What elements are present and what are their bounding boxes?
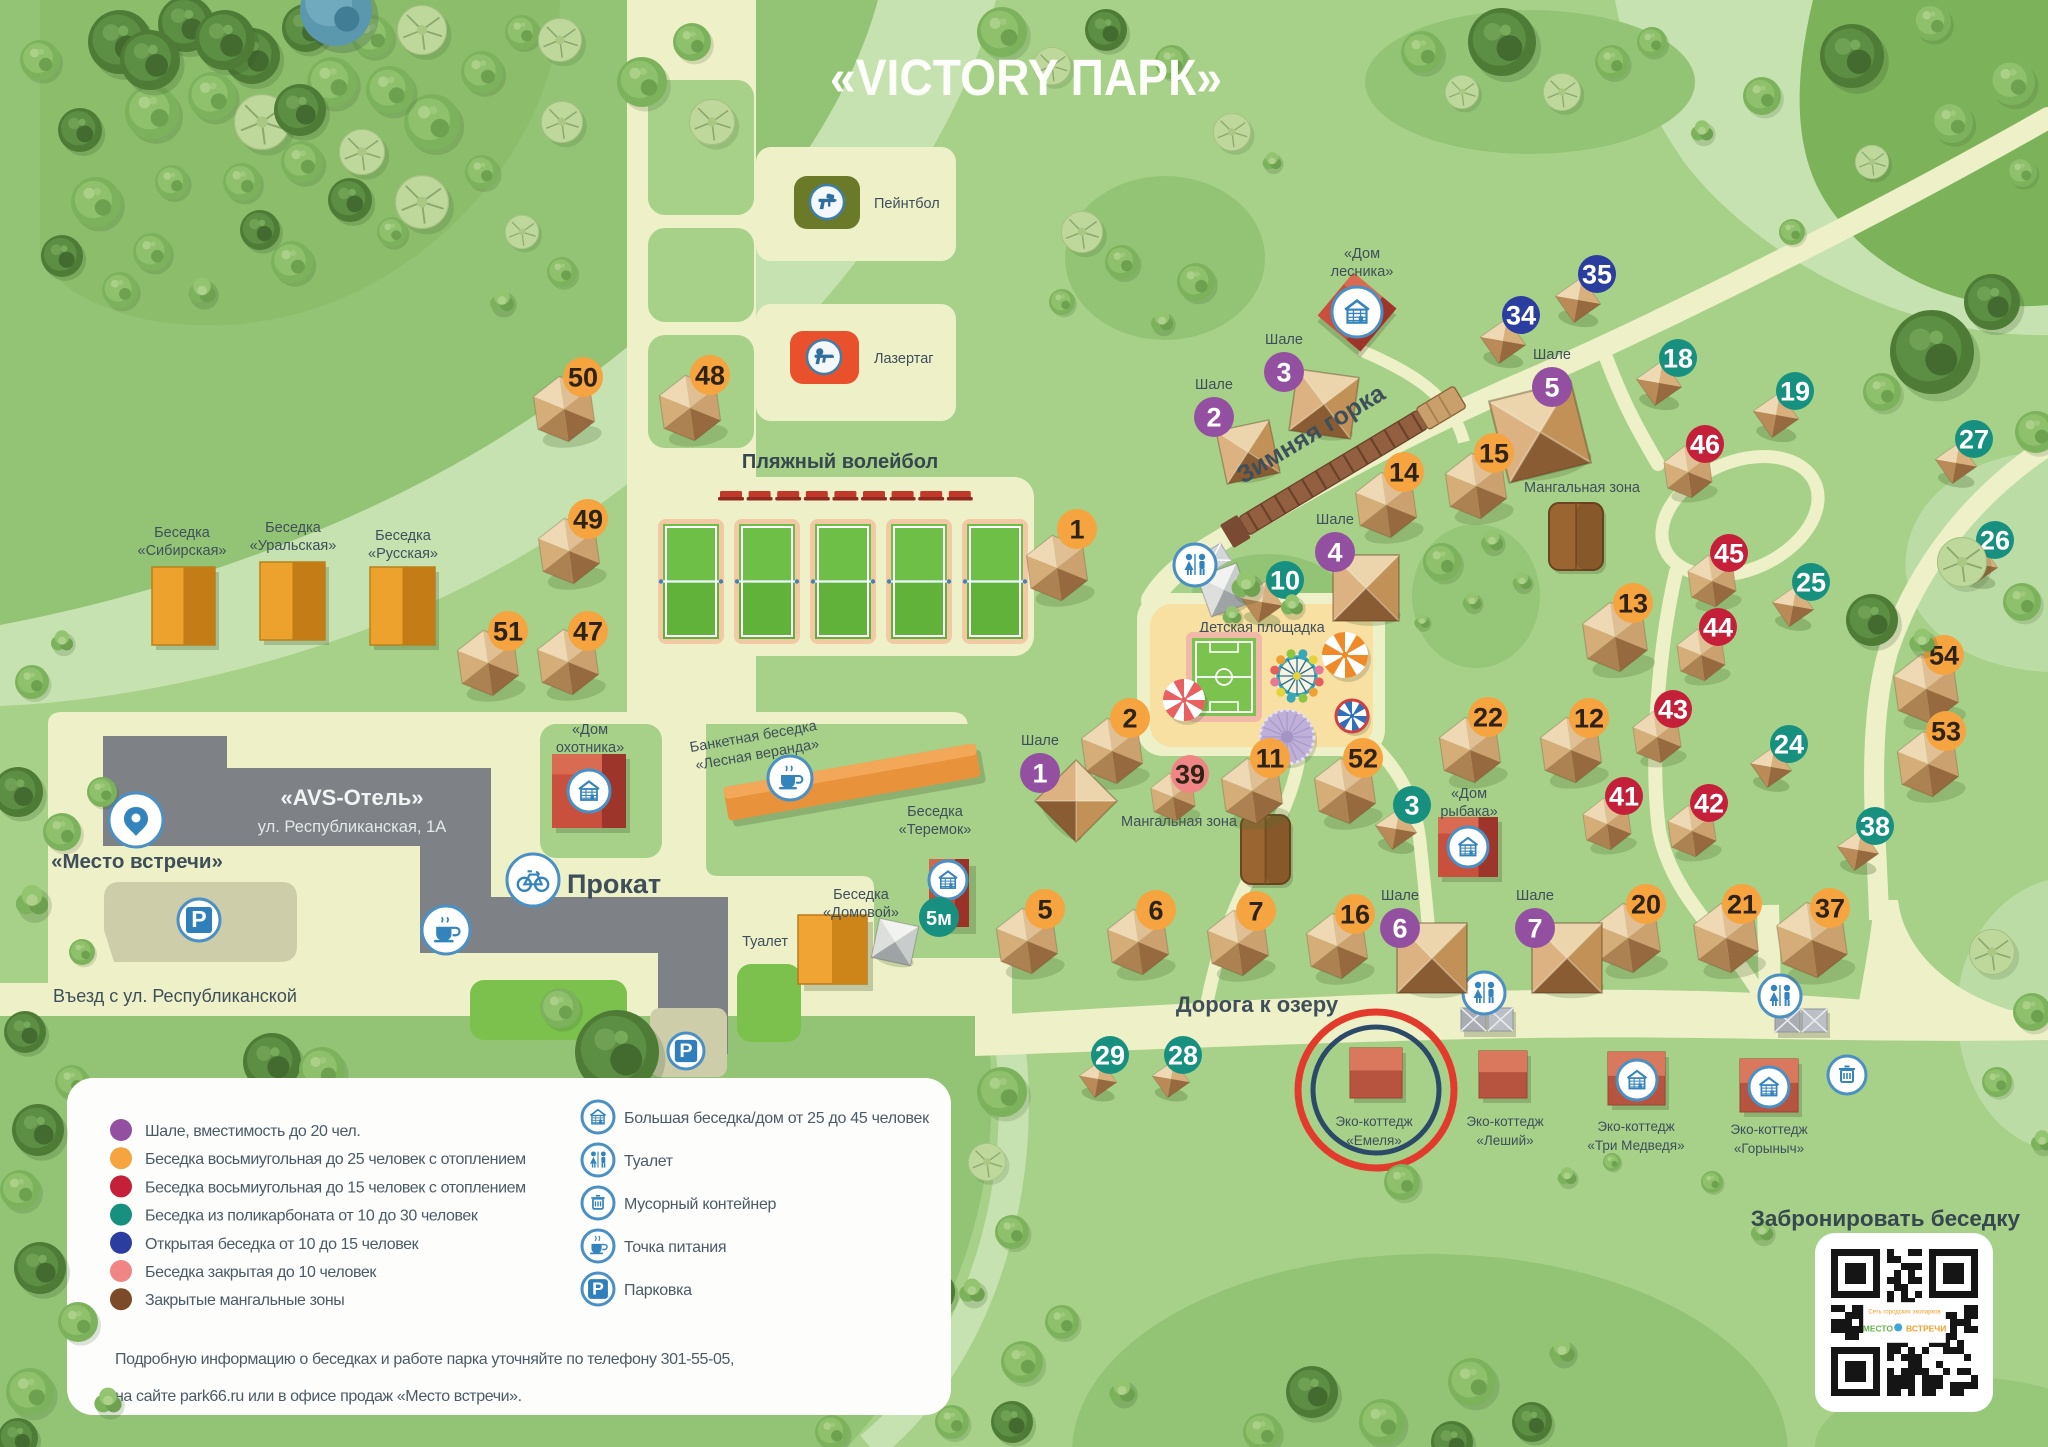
svg-text:20: 20 bbox=[1631, 889, 1661, 919]
svg-text:2: 2 bbox=[1122, 703, 1137, 733]
svg-text:Точка питания: Точка питания bbox=[624, 1239, 726, 1256]
svg-text:Прокат: Прокат bbox=[567, 869, 661, 899]
svg-text:41: 41 bbox=[1609, 781, 1639, 811]
svg-text:15: 15 bbox=[1479, 438, 1509, 468]
svg-text:Шале: Шале bbox=[1381, 888, 1419, 904]
svg-text:37: 37 bbox=[1815, 893, 1845, 923]
svg-text:«Три Медведя»: «Три Медведя» bbox=[1587, 1138, 1684, 1153]
svg-text:Эко-коттедж: Эко-коттедж bbox=[1730, 1122, 1807, 1137]
svg-text:МЕСТО: МЕСТО bbox=[1863, 1324, 1894, 1334]
svg-text:Эко-коттедж: Эко-коттедж bbox=[1335, 1114, 1412, 1129]
svg-text:5: 5 bbox=[1037, 894, 1052, 924]
svg-text:Открытая беседка от 10 до 15 ч: Открытая беседка от 10 до 15 человек bbox=[145, 1236, 420, 1253]
svg-text:Беседка восьмиугольная до 15 ч: Беседка восьмиугольная до 15 человек с о… bbox=[145, 1179, 526, 1196]
svg-text:5: 5 bbox=[1544, 372, 1559, 402]
svg-text:10: 10 bbox=[1270, 565, 1300, 595]
svg-text:ул. Республиканская, 1А: ул. Республиканская, 1А bbox=[258, 818, 446, 836]
svg-text:охотника»: охотника» bbox=[556, 740, 624, 756]
svg-text:Большая беседка/дом от 25 до 4: Большая беседка/дом от 25 до 45 человек bbox=[624, 1110, 930, 1127]
svg-text:34: 34 bbox=[1506, 300, 1536, 330]
svg-text:Парковка: Парковка bbox=[624, 1282, 692, 1299]
svg-text:Туалет: Туалет bbox=[624, 1153, 674, 1170]
svg-text:Пляжный волейбол: Пляжный волейбол bbox=[742, 451, 938, 473]
svg-text:42: 42 bbox=[1694, 788, 1724, 818]
svg-text:Шале: Шале bbox=[1516, 888, 1554, 904]
svg-text:4: 4 bbox=[1327, 537, 1342, 567]
svg-text:на сайте park66.ru или в офисе: на сайте park66.ru или в офисе продаж «М… bbox=[115, 1388, 522, 1405]
svg-text:рыбака»: рыбака» bbox=[1440, 804, 1497, 820]
svg-text:46: 46 bbox=[1690, 429, 1720, 459]
svg-text:Шале: Шале bbox=[1316, 512, 1354, 528]
svg-text:38: 38 bbox=[1860, 811, 1890, 841]
svg-text:P: P bbox=[592, 1278, 604, 1298]
svg-text:25: 25 bbox=[1796, 567, 1826, 597]
svg-text:22: 22 bbox=[1473, 702, 1503, 732]
svg-text:Туалет: Туалет bbox=[742, 934, 788, 950]
svg-text:Мангальная зона: Мангальная зона bbox=[1524, 480, 1641, 496]
svg-text:ВСТРЕЧИ: ВСТРЕЧИ bbox=[1906, 1324, 1946, 1334]
svg-text:Беседка: Беседка bbox=[833, 887, 890, 903]
svg-text:14: 14 bbox=[1389, 457, 1419, 487]
svg-text:7: 7 bbox=[1248, 896, 1263, 926]
svg-text:Шале: Шале bbox=[1021, 733, 1059, 749]
svg-text:Закрытые мангальные зоны: Закрытые мангальные зоны bbox=[145, 1292, 344, 1309]
svg-text:Эко-коттедж: Эко-коттедж bbox=[1597, 1119, 1674, 1134]
svg-text:21: 21 bbox=[1727, 889, 1757, 919]
svg-text:P: P bbox=[679, 1040, 692, 1062]
svg-text:Подробную информацию о беседка: Подробную информацию о беседках и работе… bbox=[115, 1351, 734, 1368]
svg-text:«Сибирская»: «Сибирская» bbox=[138, 543, 227, 559]
svg-text:2: 2 bbox=[1206, 402, 1221, 432]
svg-text:6: 6 bbox=[1148, 895, 1163, 925]
svg-text:«AVS-Отель»: «AVS-Отель» bbox=[280, 785, 423, 810]
svg-text:Беседка из поликарбоната от 10: Беседка из поликарбоната от 10 до 30 чел… bbox=[145, 1208, 479, 1225]
svg-text:29: 29 bbox=[1095, 1040, 1125, 1070]
svg-text:45: 45 bbox=[1714, 538, 1744, 568]
svg-text:«Дом: «Дом bbox=[1344, 246, 1380, 262]
svg-text:«Дом: «Дом bbox=[572, 722, 608, 738]
svg-text:«Леший»: «Леший» bbox=[1476, 1133, 1533, 1148]
svg-text:50: 50 bbox=[568, 362, 598, 392]
svg-text:Мусорный контейнер: Мусорный контейнер bbox=[624, 1196, 777, 1213]
svg-text:53: 53 bbox=[1931, 716, 1961, 746]
svg-text:12: 12 bbox=[1574, 703, 1604, 733]
svg-text:Въезд с ул. Республиканской: Въезд с ул. Республиканской bbox=[53, 986, 297, 1006]
svg-text:Сеть городских экопарков: Сеть городских экопарков bbox=[1868, 1309, 1940, 1315]
svg-text:35: 35 bbox=[1582, 259, 1612, 289]
svg-text:44: 44 bbox=[1703, 612, 1733, 642]
svg-text:«Русская»: «Русская» bbox=[368, 546, 438, 562]
svg-text:Беседка: Беседка bbox=[154, 525, 211, 541]
svg-text:Беседка закрытая до 10 человек: Беседка закрытая до 10 человек bbox=[145, 1264, 377, 1281]
svg-text:Шале: Шале bbox=[1195, 377, 1233, 393]
svg-text:7: 7 bbox=[1527, 913, 1542, 943]
svg-text:43: 43 bbox=[1658, 694, 1688, 724]
svg-text:13: 13 bbox=[1618, 588, 1648, 618]
svg-text:47: 47 bbox=[573, 616, 603, 646]
svg-text:Шале, вместимость до 20 чел.: Шале, вместимость до 20 чел. bbox=[145, 1123, 360, 1140]
svg-text:51: 51 bbox=[493, 616, 523, 646]
svg-text:18: 18 bbox=[1663, 343, 1693, 373]
svg-text:11: 11 bbox=[1256, 743, 1285, 773]
svg-text:Беседка: Беседка bbox=[907, 804, 964, 820]
svg-text:3: 3 bbox=[1276, 357, 1291, 387]
svg-text:Беседка восьмиугольная до 25 ч: Беседка восьмиугольная до 25 человек с о… bbox=[145, 1151, 526, 1168]
svg-text:лесника»: лесника» bbox=[1331, 264, 1394, 280]
svg-text:1: 1 bbox=[1032, 758, 1047, 788]
svg-text:«Теремок»: «Теремок» bbox=[899, 822, 972, 838]
svg-text:Лазертаг: Лазертаг bbox=[874, 351, 934, 367]
svg-text:Эко-коттедж: Эко-коттедж bbox=[1466, 1114, 1543, 1129]
svg-text:52: 52 bbox=[1348, 743, 1378, 773]
svg-text:«Место встречи»: «Место встречи» bbox=[51, 850, 223, 873]
svg-text:27: 27 bbox=[1959, 424, 1989, 454]
svg-text:«VICTORY ПАРК»: «VICTORY ПАРК» bbox=[830, 49, 1222, 106]
svg-text:6: 6 bbox=[1392, 913, 1407, 943]
svg-text:28: 28 bbox=[1168, 1040, 1198, 1070]
svg-text:«Горыныч»: «Горыныч» bbox=[1734, 1141, 1804, 1156]
svg-text:24: 24 bbox=[1774, 729, 1804, 759]
svg-text:Пейнтбол: Пейнтбол bbox=[874, 196, 940, 212]
svg-text:«Емеля»: «Емеля» bbox=[1346, 1133, 1402, 1148]
svg-text:5м: 5м bbox=[926, 908, 952, 930]
svg-text:Забронировать беседку: Забронировать беседку bbox=[1751, 1206, 2021, 1231]
svg-text:Беседка: Беседка bbox=[265, 520, 322, 536]
svg-text:39: 39 bbox=[1175, 759, 1205, 789]
svg-text:1: 1 bbox=[1069, 514, 1084, 544]
svg-text:Шале: Шале bbox=[1533, 347, 1571, 363]
svg-text:Шале: Шале bbox=[1265, 332, 1303, 348]
svg-text:«Домовой»: «Домовой» bbox=[823, 905, 899, 921]
svg-text:48: 48 bbox=[695, 360, 725, 390]
svg-text:«Уральская»: «Уральская» bbox=[250, 538, 337, 554]
svg-text:49: 49 bbox=[573, 504, 603, 534]
svg-text:19: 19 bbox=[1780, 376, 1810, 406]
svg-text:P: P bbox=[191, 906, 206, 932]
svg-text:Дорога к озеру: Дорога к озеру bbox=[1176, 992, 1339, 1017]
svg-text:3: 3 bbox=[1404, 790, 1419, 820]
svg-text:16: 16 bbox=[1340, 899, 1370, 929]
svg-text:Беседка: Беседка bbox=[375, 528, 432, 544]
